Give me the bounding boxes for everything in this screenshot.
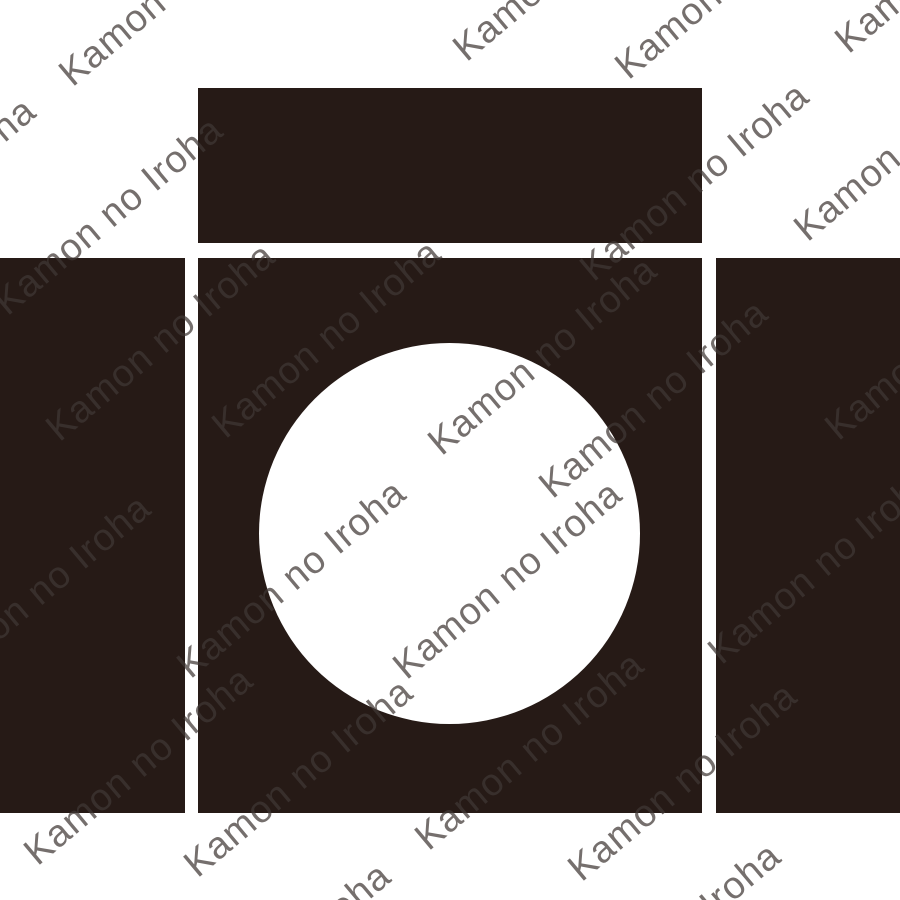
watermark-text: Kamon no Iroha [829, 0, 900, 60]
watermark-text: Kamon no Iroha [53, 0, 295, 93]
crest-right-panel [716, 258, 900, 813]
watermark-text: Kamon no Iroha [609, 0, 851, 86]
crest-circle-cutout [259, 343, 640, 724]
watermark-text: Kamon no Iroha [546, 836, 788, 900]
kamon-crest-image: Kamon no IrohaKamon no IrohaKamon no Iro… [0, 0, 900, 900]
crest-left-panel [0, 258, 185, 813]
watermark-text: Kamon no Iroha [156, 856, 398, 900]
crest-top-bar [198, 88, 702, 243]
watermark-text: Kamon no Iroha [447, 0, 689, 68]
watermark-text: Kamon no Iroha [788, 36, 900, 248]
